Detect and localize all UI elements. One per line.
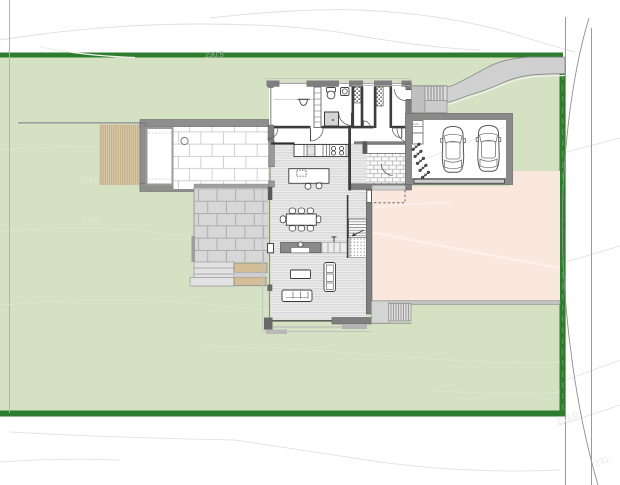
svg-text:tvm: tvm	[414, 122, 419, 126]
svg-text:230.5: 230.5	[205, 50, 224, 60]
svg-text:234.5: 234.5	[80, 175, 99, 185]
svg-text:231.5: 231.5	[82, 215, 101, 225]
